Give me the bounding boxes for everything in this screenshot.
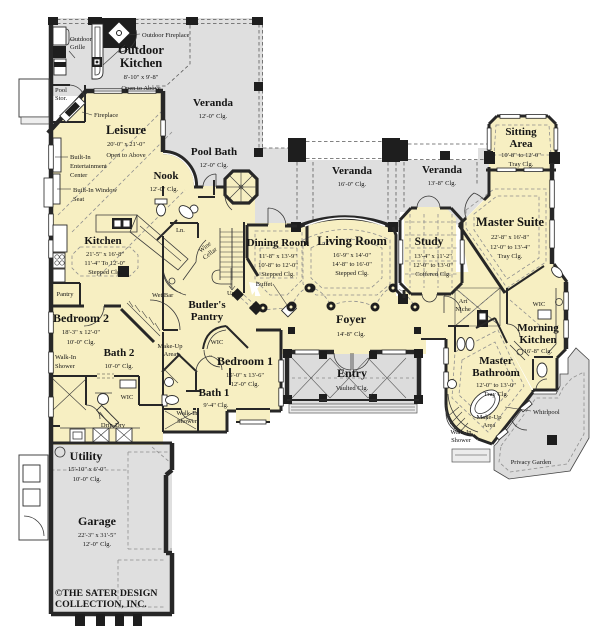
svg-text:Center: Center xyxy=(70,172,88,179)
svg-text:Walk-In: Walk-In xyxy=(176,410,198,417)
svg-text:Garage: Garage xyxy=(78,514,117,528)
svg-text:Open to Above: Open to Above xyxy=(121,85,160,92)
svg-text:Shower: Shower xyxy=(177,418,198,425)
svg-text:12'-0" Clg.: 12'-0" Clg. xyxy=(199,113,228,120)
svg-text:Nook: Nook xyxy=(153,170,179,182)
svg-text:Entertainment: Entertainment xyxy=(70,163,107,170)
svg-text:Foyer: Foyer xyxy=(336,312,367,326)
svg-text:20'-0" x 21'-0": 20'-0" x 21'-0" xyxy=(107,141,145,148)
svg-text:Leisure: Leisure xyxy=(106,123,146,137)
svg-text:14'-8" Clg.: 14'-8" Clg. xyxy=(337,331,366,338)
svg-text:Stepped Clg.: Stepped Clg. xyxy=(261,271,295,278)
svg-text:22'-8" x 16'-8": 22'-8" x 16'-8" xyxy=(491,234,529,241)
svg-text:Tray Clg.: Tray Clg. xyxy=(509,161,534,168)
svg-text:Privacy Garden: Privacy Garden xyxy=(511,459,552,466)
svg-text:Master Suite: Master Suite xyxy=(476,215,545,229)
svg-text:Vaulted Clg.: Vaulted Clg. xyxy=(336,385,369,392)
svg-text:Seat: Seat xyxy=(73,196,84,203)
svg-text:Art: Art xyxy=(459,298,468,305)
svg-text:Outdoor Fireplace: Outdoor Fireplace xyxy=(142,32,190,39)
svg-text:Built-In: Built-In xyxy=(70,154,91,161)
svg-text:16'-9" x 14'-0": 16'-9" x 14'-0" xyxy=(333,252,371,259)
svg-text:Pool Bath: Pool Bath xyxy=(191,146,237,158)
svg-text:Veranda: Veranda xyxy=(422,164,462,176)
svg-text:13'-8" Clg.: 13'-8" Clg. xyxy=(428,180,457,187)
svg-text:Walk-In: Walk-In xyxy=(450,429,472,436)
svg-text:©THE SATER DESIGN: ©THE SATER DESIGN xyxy=(55,588,157,599)
svg-text:Grille: Grille xyxy=(70,44,85,51)
svg-text:Area: Area xyxy=(483,422,496,429)
svg-text:15'-10" x 6'-0": 15'-10" x 6'-0" xyxy=(68,466,106,473)
svg-text:Ln.: Ln. xyxy=(176,227,185,234)
svg-text:12'-0" Clg.: 12'-0" Clg. xyxy=(150,186,179,193)
svg-text:Walk-In: Walk-In xyxy=(55,354,77,361)
svg-text:Butler's: Butler's xyxy=(188,299,226,311)
svg-text:Make-Up: Make-Up xyxy=(158,343,183,350)
svg-text:Pool: Pool xyxy=(55,87,67,94)
svg-text:Morning: Morning xyxy=(517,322,559,334)
svg-text:COLLECTION, INC.: COLLECTION, INC. xyxy=(55,599,147,610)
svg-text:12'-0" to 13'-4": 12'-0" to 13'-4" xyxy=(490,244,530,251)
svg-text:14'-8" to 16'-0": 14'-8" to 16'-0" xyxy=(332,261,372,268)
svg-text:Tray Clg.: Tray Clg. xyxy=(484,391,509,398)
svg-text:Veranda: Veranda xyxy=(332,165,372,177)
svg-text:Stepped Clg.: Stepped Clg. xyxy=(88,269,122,276)
svg-text:10'-8" to 12'-0": 10'-8" to 12'-0" xyxy=(258,262,298,269)
svg-text:8'-10" x 9'-8": 8'-10" x 9'-8" xyxy=(124,74,159,81)
svg-text:Bath 2: Bath 2 xyxy=(104,347,135,359)
svg-text:Buffet: Buffet xyxy=(256,281,273,288)
svg-text:Kitchen: Kitchen xyxy=(519,334,556,346)
svg-text:Shower: Shower xyxy=(451,437,472,444)
svg-text:Bedroom 2: Bedroom 2 xyxy=(53,311,109,325)
svg-text:Master: Master xyxy=(479,355,513,367)
svg-text:Area: Area xyxy=(509,138,533,150)
svg-text:Pantry: Pantry xyxy=(57,291,75,298)
svg-text:Area: Area xyxy=(164,351,177,358)
svg-text:Veranda: Veranda xyxy=(193,97,233,109)
svg-text:11'-4" To 12'-0": 11'-4" To 12'-0" xyxy=(84,260,125,267)
svg-text:Niche: Niche xyxy=(455,306,471,313)
svg-text:Up: Up xyxy=(227,290,235,297)
svg-text:Living Room: Living Room xyxy=(317,234,387,248)
svg-text:22'-3" x 31'-5": 22'-3" x 31'-5" xyxy=(78,532,116,539)
svg-text:10'-0" Clg.: 10'-0" Clg. xyxy=(67,339,96,346)
svg-text:12'-0" Clg.: 12'-0" Clg. xyxy=(200,162,229,169)
svg-text:Study: Study xyxy=(415,236,444,248)
svg-text:12'-0" Clg.: 12'-0" Clg. xyxy=(231,381,260,388)
svg-text:16'-8" Clg.: 16'-8" Clg. xyxy=(524,348,553,355)
svg-text:Bedroom 1: Bedroom 1 xyxy=(217,354,273,368)
svg-text:12'-0" to 13'-0": 12'-0" to 13'-0" xyxy=(476,382,516,389)
svg-text:12'-0" Clg.: 12'-0" Clg. xyxy=(83,541,112,548)
svg-text:10'-8" to 12'-0": 10'-8" to 12'-0" xyxy=(501,152,541,159)
svg-text:Whirlpool: Whirlpool xyxy=(533,409,560,416)
svg-text:Bathroom: Bathroom xyxy=(472,367,519,379)
svg-text:Utility: Utility xyxy=(70,449,103,463)
svg-text:Stepped Clg.: Stepped Clg. xyxy=(335,270,369,277)
svg-text:21'-5" x 16'-8": 21'-5" x 16'-8" xyxy=(86,251,124,258)
svg-text:Stor.: Stor. xyxy=(55,95,67,102)
svg-text:12'-0" to 13'-0": 12'-0" to 13'-0" xyxy=(413,262,453,269)
svg-text:WIC: WIC xyxy=(533,301,546,308)
svg-text:Dining Room: Dining Room xyxy=(247,237,310,249)
svg-text:10'-0" Clg.: 10'-0" Clg. xyxy=(105,363,134,370)
svg-text:Kitchen: Kitchen xyxy=(84,235,121,247)
svg-text:Fireplace: Fireplace xyxy=(94,112,118,119)
svg-text:9'-4" Clg.: 9'-4" Clg. xyxy=(203,402,229,409)
svg-text:Entry: Entry xyxy=(337,366,367,380)
svg-text:Drip-Dry: Drip-Dry xyxy=(101,422,126,429)
svg-text:18'-3" x 12'-0": 18'-3" x 12'-0" xyxy=(62,329,100,336)
svg-text:Sitting: Sitting xyxy=(505,126,537,138)
svg-text:Bath 1: Bath 1 xyxy=(199,387,230,399)
svg-text:11'-8" x 13'-9": 11'-8" x 13'-9" xyxy=(259,253,297,260)
svg-text:Shower: Shower xyxy=(55,363,76,370)
svg-text:Make-Up: Make-Up xyxy=(477,414,502,421)
svg-text:15'-0" x 13'-6": 15'-0" x 13'-6" xyxy=(226,372,264,379)
svg-text:WIC: WIC xyxy=(211,339,224,346)
svg-text:Built-In Window: Built-In Window xyxy=(73,187,118,194)
svg-text:Pantry: Pantry xyxy=(191,311,224,323)
svg-text:Wet Bar: Wet Bar xyxy=(152,292,174,299)
svg-text:10'-0" Clg.: 10'-0" Clg. xyxy=(73,476,102,483)
svg-text:Coffered Clg.: Coffered Clg. xyxy=(415,271,451,278)
svg-text:Open to Above: Open to Above xyxy=(106,152,145,159)
svg-text:Tray Clg.: Tray Clg. xyxy=(498,253,523,260)
svg-text:13'-4" x 11'-2": 13'-4" x 11'-2" xyxy=(414,253,452,260)
svg-text:16'-0" Clg.: 16'-0" Clg. xyxy=(338,181,367,188)
svg-text:Kitchen: Kitchen xyxy=(120,56,162,70)
svg-text:Outdoor: Outdoor xyxy=(70,36,93,43)
svg-text:WIC: WIC xyxy=(121,394,134,401)
